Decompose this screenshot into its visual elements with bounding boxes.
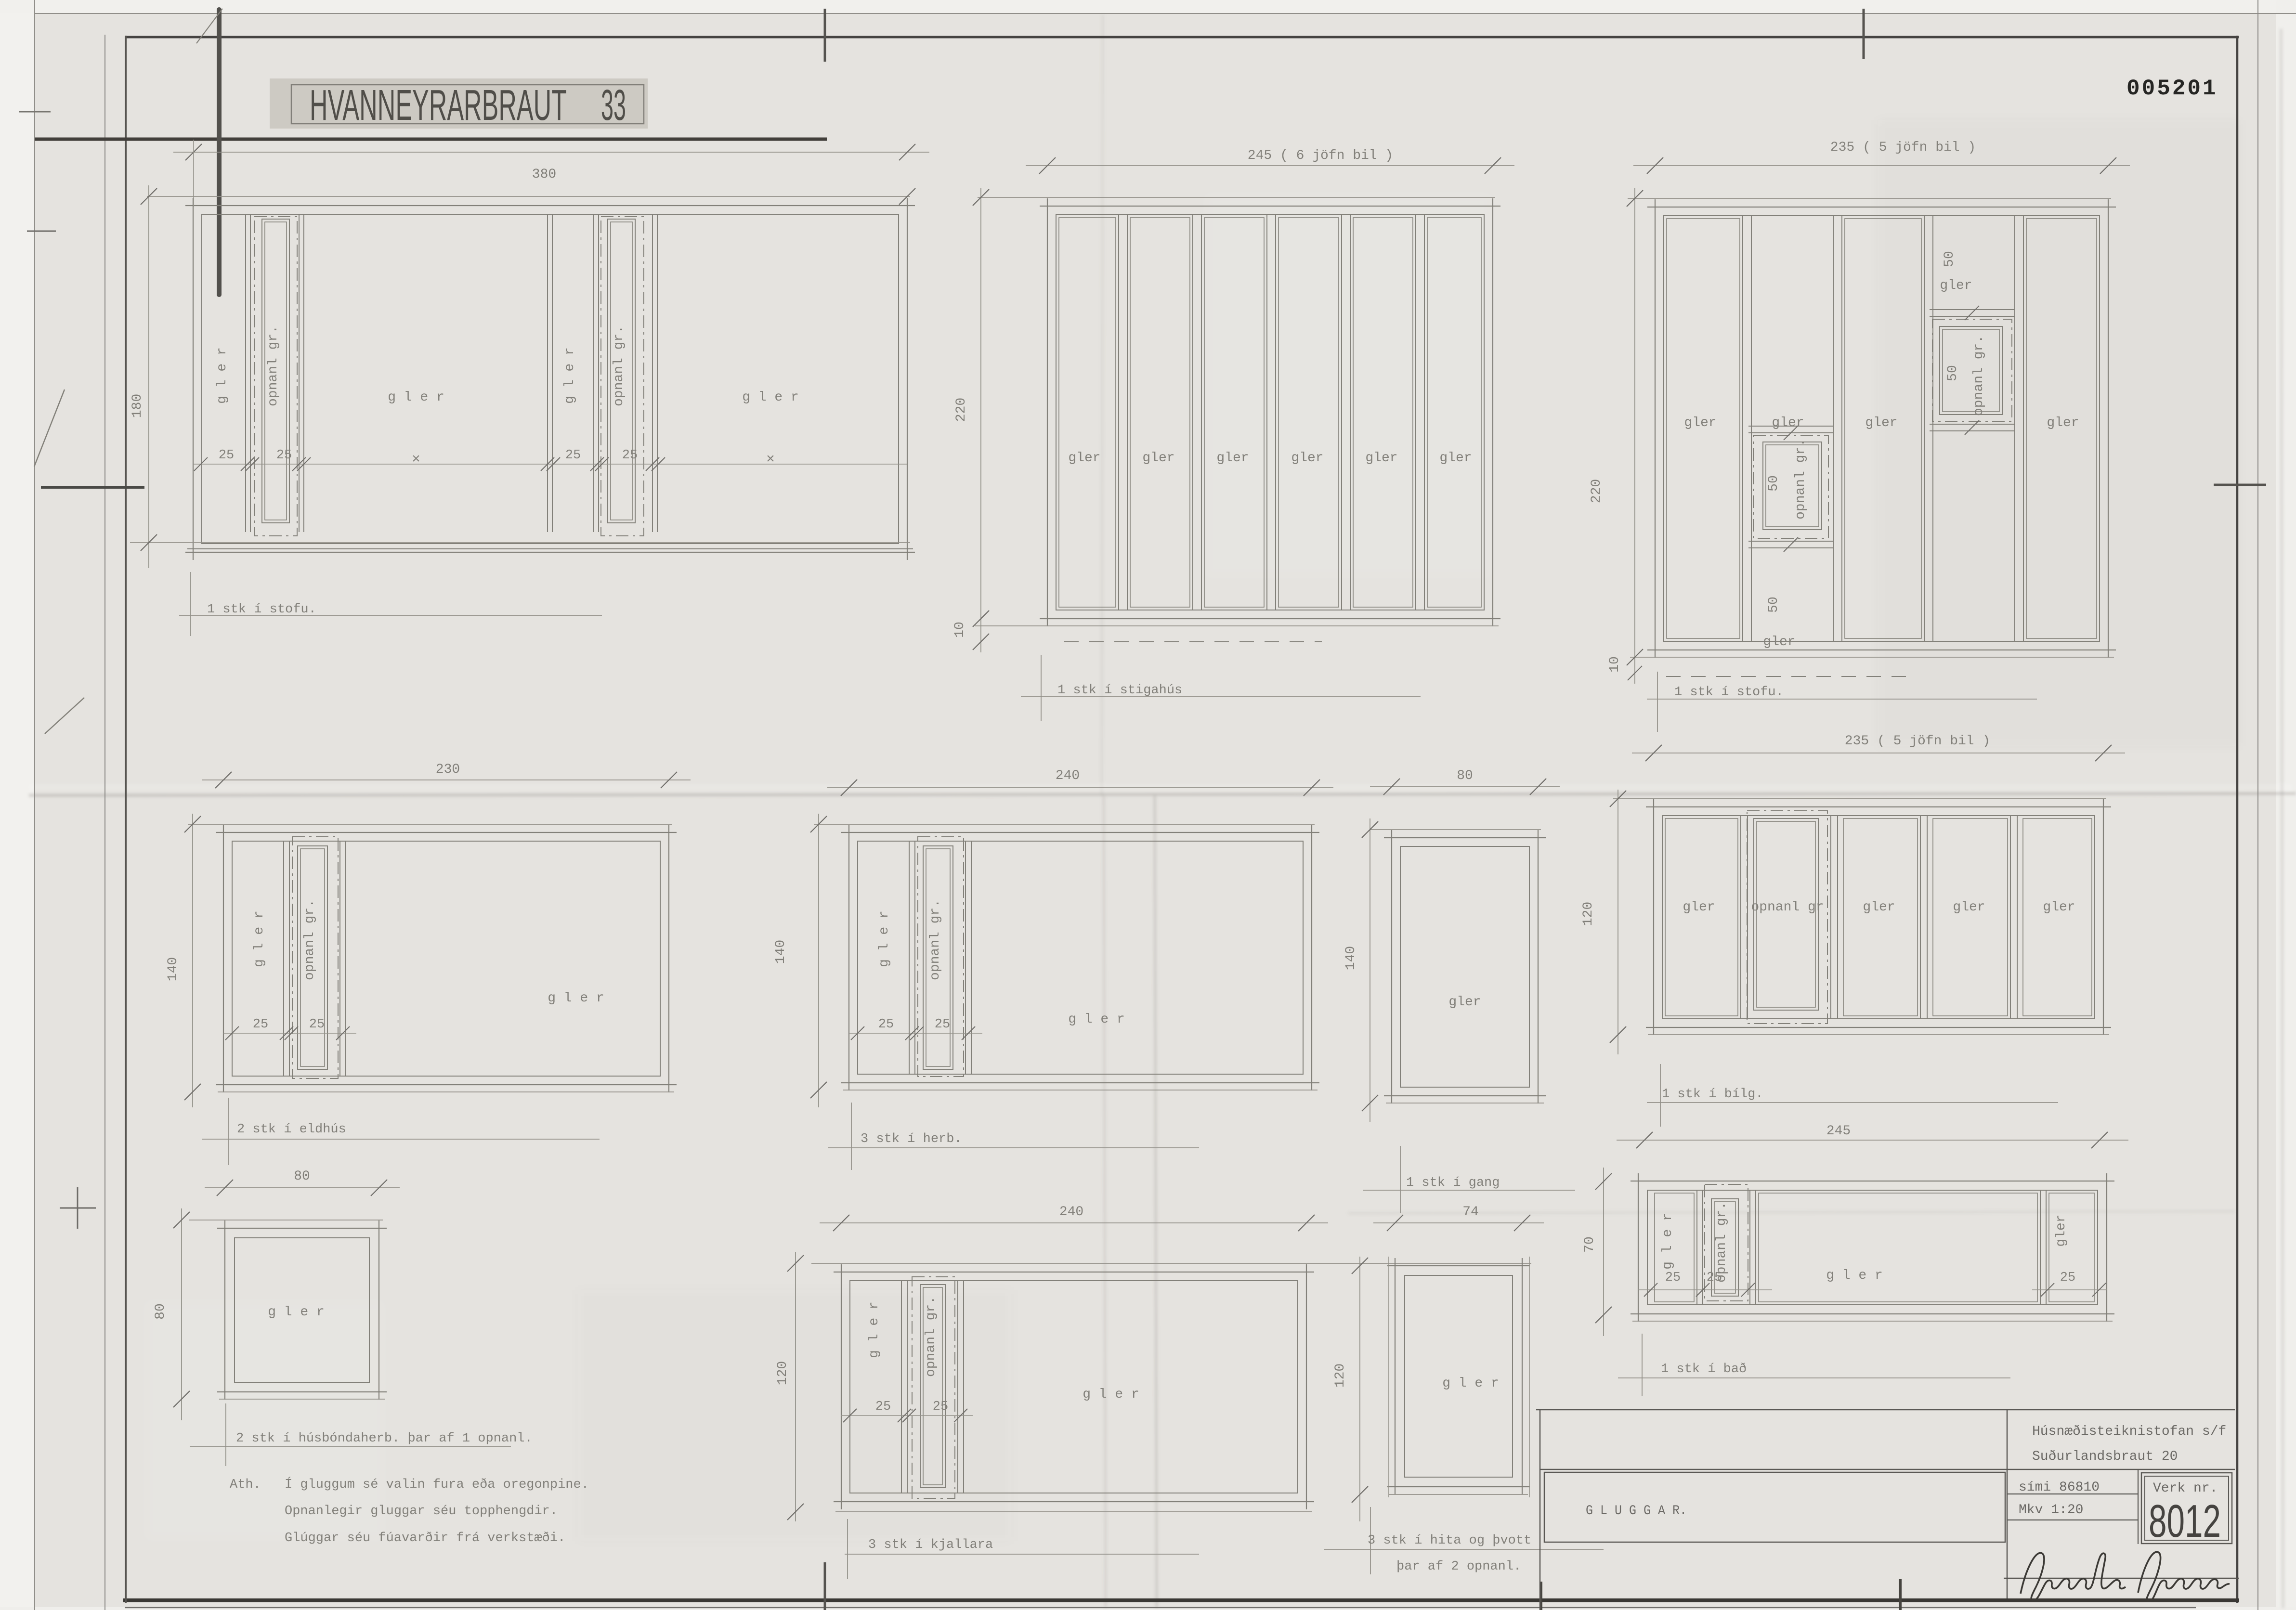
- svg-text:005201: 005201: [2126, 76, 2218, 101]
- svg-text:opnanl gr.: opnanl gr.: [612, 325, 626, 406]
- svg-text:gler: gler: [1865, 415, 1897, 430]
- svg-text:g l e r: g l e r: [1826, 1268, 1883, 1283]
- svg-text:×: ×: [766, 452, 775, 468]
- svg-text:gler: gler: [2047, 415, 2079, 430]
- svg-text:25: 25: [2060, 1271, 2075, 1285]
- svg-text:gler: gler: [1940, 278, 1972, 293]
- svg-text:opnanl gr.: opnanl gr.: [1714, 1202, 1729, 1283]
- svg-text:50: 50: [1945, 365, 1960, 381]
- svg-text:gler: gler: [1365, 451, 1397, 466]
- svg-text:245: 245: [1826, 1124, 1851, 1139]
- svg-text:1 stk í bað: 1 stk í bað: [1661, 1362, 1747, 1376]
- svg-text:8012: 8012: [2149, 1495, 2221, 1547]
- svg-text:gler: gler: [1863, 900, 1895, 915]
- svg-text:50: 50: [1766, 597, 1781, 613]
- svg-text:gler: gler: [2054, 1214, 2069, 1246]
- svg-text:Opnanlegir gluggar séu topphen: Opnanlegir gluggar séu topphengdir.: [285, 1504, 558, 1519]
- svg-text:235 ( 5 jöfn bil ): 235 ( 5 jöfn bil ): [1830, 140, 1976, 155]
- svg-text:240: 240: [1056, 768, 1080, 783]
- svg-text:180: 180: [130, 394, 145, 418]
- svg-text:Verk nr.: Verk nr.: [2153, 1481, 2218, 1496]
- svg-text:25: 25: [253, 1017, 268, 1032]
- svg-text:140: 140: [166, 957, 181, 981]
- svg-text:opnanl gr.: opnanl gr.: [302, 899, 317, 980]
- svg-text:g l e r: g l e r: [742, 390, 799, 405]
- svg-text:Mkv 1:20: Mkv 1:20: [2019, 1503, 2083, 1518]
- svg-text:220: 220: [954, 398, 969, 422]
- svg-text:opnanl gr: opnanl gr: [1751, 900, 1824, 915]
- svg-text:opnanl gr.: opnanl gr.: [1793, 439, 1808, 519]
- svg-text:gler: gler: [1684, 415, 1716, 430]
- svg-text:Glúggar séu fúavarðir frá verk: Glúggar séu fúavarðir frá verkstæði.: [285, 1531, 565, 1545]
- svg-text:g l e r: g l e r: [1660, 1213, 1675, 1270]
- svg-text:gler: gler: [1772, 415, 1804, 430]
- svg-text:g l e r: g l e r: [268, 1305, 325, 1320]
- svg-text:120: 120: [1333, 1363, 1348, 1388]
- svg-text:3 stk í kjallara: 3 stk í kjallara: [868, 1538, 993, 1552]
- svg-text:25: 25: [309, 1017, 325, 1032]
- svg-text:25: 25: [276, 448, 292, 463]
- svg-text:80: 80: [294, 1169, 310, 1184]
- svg-text:×: ×: [412, 452, 420, 468]
- svg-text:HVANNEYRARBRAUT: HVANNEYRARBRAUT: [310, 81, 567, 130]
- svg-text:1 stk í gang: 1 stk í gang: [1406, 1176, 1500, 1190]
- svg-text:120: 120: [775, 1361, 790, 1385]
- svg-text:1 stk í stofu.: 1 stk í stofu.: [1674, 685, 1784, 700]
- svg-text:140: 140: [1344, 946, 1358, 970]
- svg-text:240: 240: [1059, 1205, 1083, 1220]
- svg-text:1 stk í stofu.: 1 stk í stofu.: [207, 602, 316, 617]
- svg-text:1 stk í stigahús: 1 stk í stigahús: [1057, 683, 1182, 698]
- svg-text:Í gluggum sé valin fura eða or: Í gluggum sé valin fura eða oregonpine.: [285, 1477, 589, 1492]
- svg-text:gler: gler: [1216, 451, 1249, 466]
- svg-text:3 stk í herb.: 3 stk í herb.: [861, 1132, 962, 1146]
- svg-text:opnanl gr.: opnanl gr.: [266, 325, 281, 406]
- svg-text:g l e r: g l e r: [252, 910, 267, 967]
- svg-text:g l e r: g l e r: [1442, 1376, 1499, 1391]
- svg-text:g l e r: g l e r: [877, 910, 892, 967]
- svg-text:sími 86810: sími 86810: [2019, 1480, 2100, 1495]
- svg-text:245 ( 6 jöfn bil ): 245 ( 6 jöfn bil ): [1248, 148, 1393, 163]
- svg-text:33: 33: [601, 81, 626, 130]
- svg-text:25: 25: [878, 1017, 894, 1032]
- svg-text:gler: gler: [1953, 900, 1985, 915]
- svg-text:gler: gler: [1683, 900, 1715, 915]
- svg-text:Suðurlandsbraut 20: Suðurlandsbraut 20: [2032, 1449, 2178, 1464]
- svg-text:2 stk í eldhús: 2 stk í eldhús: [237, 1122, 346, 1137]
- svg-text:25: 25: [622, 448, 638, 463]
- svg-text:þar af 2 opnanl.: þar af 2 opnanl.: [1396, 1559, 1521, 1574]
- svg-text:1 stk í bílg.: 1 stk í bílg.: [1662, 1087, 1763, 1102]
- svg-text:opnanl gr.: opnanl gr.: [928, 899, 943, 980]
- svg-text:120: 120: [1581, 902, 1596, 926]
- svg-text:gler: gler: [1291, 451, 1323, 466]
- svg-text:25: 25: [875, 1400, 891, 1414]
- svg-text:230: 230: [436, 762, 460, 777]
- svg-text:220: 220: [1589, 479, 1604, 503]
- svg-text:g l e r: g l e r: [548, 991, 604, 1006]
- svg-text:gler: gler: [1763, 635, 1795, 649]
- svg-text:g l e r: g l e r: [1068, 1012, 1125, 1027]
- svg-text:25: 25: [1665, 1271, 1681, 1285]
- svg-text:10: 10: [952, 622, 967, 638]
- svg-text:25: 25: [933, 1400, 948, 1414]
- svg-text:Ath.: Ath.: [230, 1478, 261, 1492]
- svg-text:G L U G G A R.: G L U G G A R.: [1586, 1504, 1687, 1519]
- svg-text:g l e r: g l e r: [388, 390, 444, 405]
- svg-text:gler: gler: [2043, 900, 2075, 915]
- svg-text:2 stk í húsbóndaherb. þar af 1: 2 stk í húsbóndaherb. þar af 1 opnanl.: [236, 1431, 533, 1446]
- svg-text:10: 10: [1607, 656, 1622, 673]
- svg-text:gler: gler: [1448, 995, 1481, 1010]
- svg-text:g l e r: g l e r: [1083, 1387, 1139, 1402]
- svg-text:opnanl gr.: opnanl gr.: [924, 1296, 939, 1377]
- svg-text:380: 380: [532, 167, 556, 182]
- svg-text:25: 25: [935, 1017, 950, 1032]
- svg-text:70: 70: [1582, 1236, 1597, 1253]
- svg-text:235 ( 5 jöfn bil ): 235 ( 5 jöfn bil ): [1845, 734, 1990, 749]
- svg-text:25: 25: [565, 448, 581, 463]
- svg-text:gler: gler: [1068, 451, 1100, 466]
- svg-text:Húsnæðisteiknistofan s/f: Húsnæðisteiknistofan s/f: [2032, 1424, 2226, 1439]
- svg-text:g l e r: g l e r: [867, 1301, 882, 1358]
- svg-text:74: 74: [1462, 1205, 1479, 1220]
- svg-text:opnanl gr.: opnanl gr.: [1971, 335, 1986, 416]
- svg-text:g l e r: g l e r: [562, 347, 577, 404]
- svg-text:3 stk í hita og þvott: 3 stk í hita og þvott: [1368, 1533, 1531, 1548]
- svg-text:gler: gler: [1439, 451, 1472, 466]
- svg-text:80: 80: [1457, 768, 1473, 783]
- svg-text:gler: gler: [1142, 451, 1174, 466]
- svg-text:140: 140: [773, 940, 788, 964]
- svg-text:25: 25: [219, 448, 234, 463]
- svg-text:g l e r: g l e r: [215, 347, 230, 404]
- svg-text:50: 50: [1766, 475, 1781, 492]
- svg-text:50: 50: [1942, 251, 1957, 267]
- svg-text:80: 80: [153, 1303, 168, 1320]
